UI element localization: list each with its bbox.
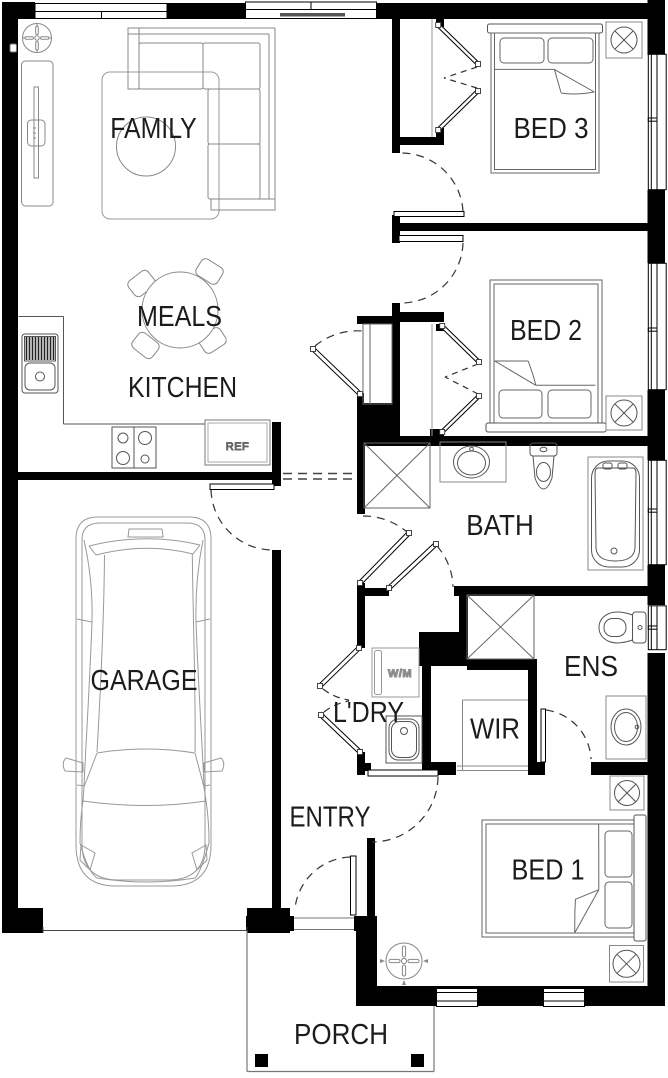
svg-text:REF: REF bbox=[226, 441, 250, 453]
svg-text:ENTRY: ENTRY bbox=[290, 802, 371, 834]
svg-text:MEALS: MEALS bbox=[137, 301, 222, 333]
svg-text:BED 2: BED 2 bbox=[510, 315, 582, 347]
svg-text:W/M: W/M bbox=[388, 668, 412, 680]
svg-text:PORCH: PORCH bbox=[294, 1019, 388, 1051]
svg-text:L'DRY: L'DRY bbox=[333, 697, 404, 729]
svg-text:GARAGE: GARAGE bbox=[91, 665, 198, 697]
svg-text:FAMILY: FAMILY bbox=[110, 113, 197, 145]
svg-text:ENS: ENS bbox=[564, 651, 618, 683]
svg-text:BED 3: BED 3 bbox=[514, 113, 589, 145]
svg-text:KITCHEN: KITCHEN bbox=[128, 372, 237, 404]
svg-text:BATH: BATH bbox=[466, 510, 534, 542]
svg-text:WIR: WIR bbox=[470, 714, 520, 746]
svg-text:BED 1: BED 1 bbox=[512, 855, 585, 887]
